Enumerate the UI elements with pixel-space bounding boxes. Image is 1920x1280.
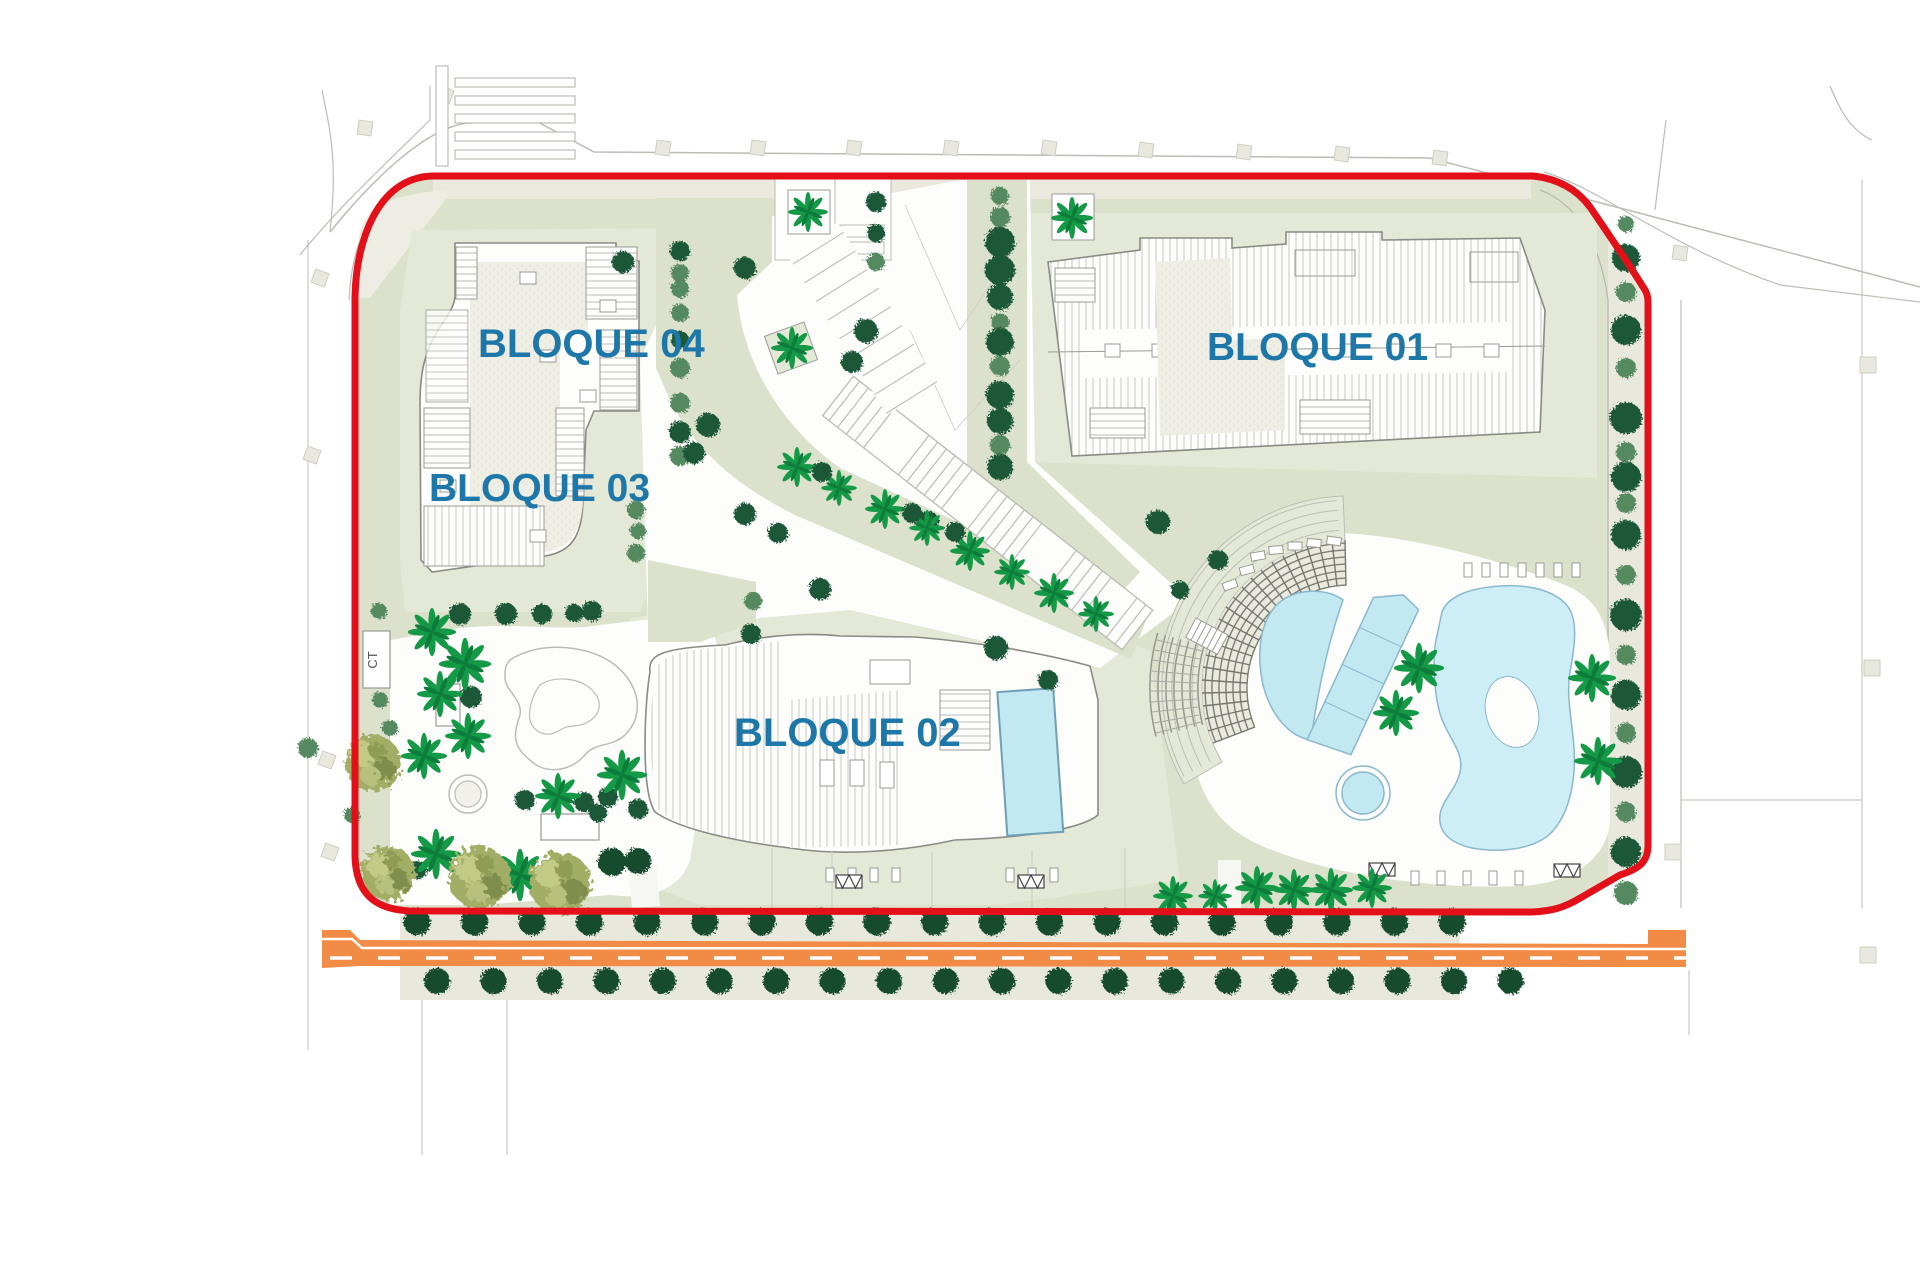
svg-text:BLOQUE 03: BLOQUE 03 [429,467,650,510]
svg-text:CT: CT [365,651,380,668]
svg-text:BLOQUE 02: BLOQUE 02 [734,711,961,755]
svg-text:BLOQUE 04: BLOQUE 04 [478,322,705,366]
svg-text:BLOQUE 01: BLOQUE 01 [1207,326,1428,369]
